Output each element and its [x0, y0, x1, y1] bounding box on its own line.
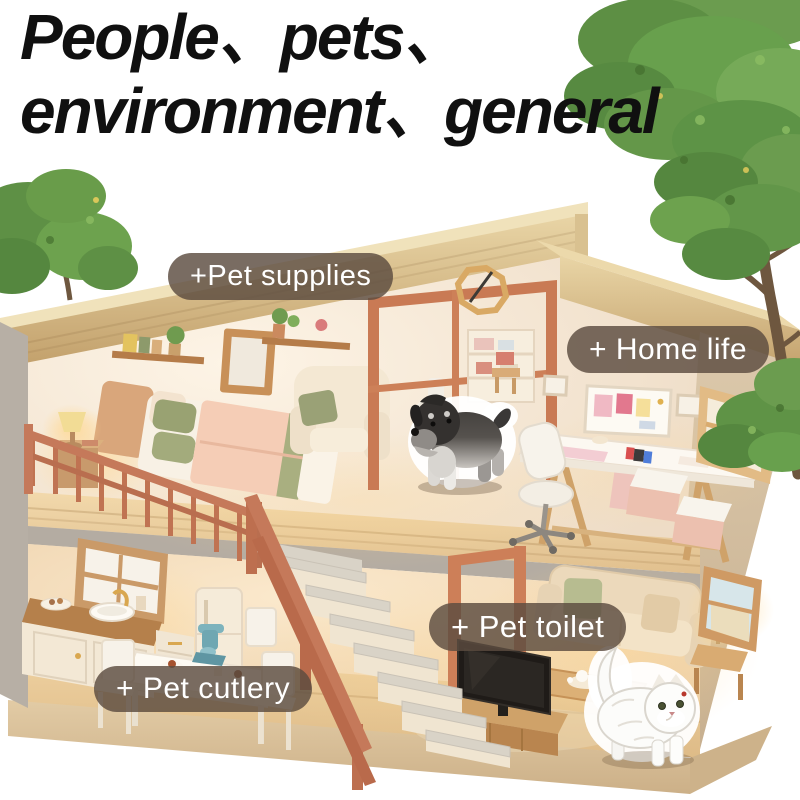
hotspot-home-life-label: + Home life: [589, 333, 747, 367]
page-root: { "title": { "line1": "People、pets、", "l…: [0, 0, 800, 800]
hotspot-pet-toilet-label: + Pet toilet: [451, 609, 604, 645]
title-line-1: People、pets、: [20, 0, 658, 74]
page-title: People、pets、 environment、general: [20, 0, 658, 148]
hotspot-pet-cutlery-label: + Pet cutlery: [116, 672, 290, 706]
hotspot-pet-supplies[interactable]: +Pet supplies: [168, 253, 393, 300]
left-tree: [0, 169, 138, 300]
hotspot-pet-supplies-label: +Pet supplies: [190, 260, 371, 293]
hotspot-pet-toilet[interactable]: + Pet toilet: [429, 603, 626, 651]
title-line-2: environment、general: [20, 74, 658, 148]
dollhouse-scene: People、pets、 environment、general +Pet su…: [0, 0, 800, 800]
hotspot-pet-cutlery[interactable]: + Pet cutlery: [94, 666, 312, 712]
hotspot-home-life[interactable]: + Home life: [567, 326, 769, 373]
pinboard: [585, 386, 671, 436]
laundry-shelf: [468, 330, 534, 402]
